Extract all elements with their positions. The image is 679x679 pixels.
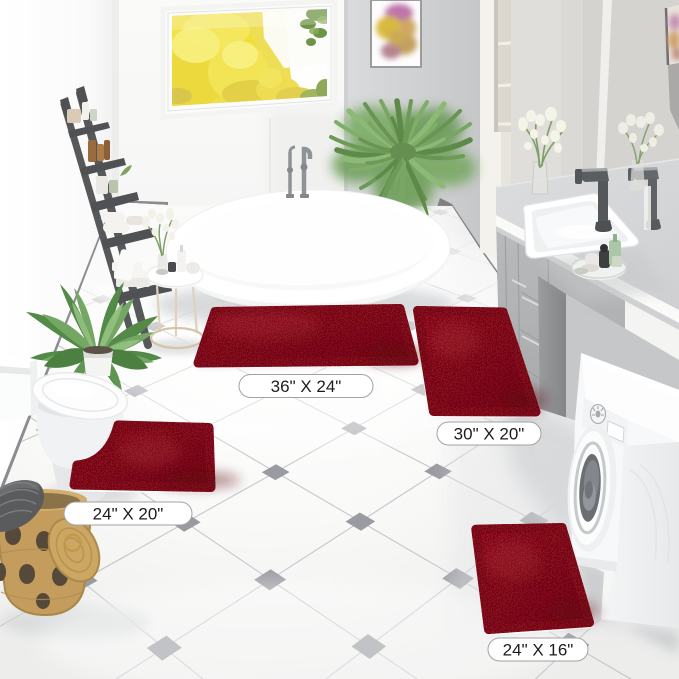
svg-text:30" X 20": 30" X 20" (454, 425, 525, 444)
svg-text:24" X 16": 24" X 16" (503, 641, 574, 660)
svg-text:24" X 20": 24" X 20" (93, 505, 164, 524)
svg-text:36" X 24": 36" X 24" (271, 377, 342, 396)
